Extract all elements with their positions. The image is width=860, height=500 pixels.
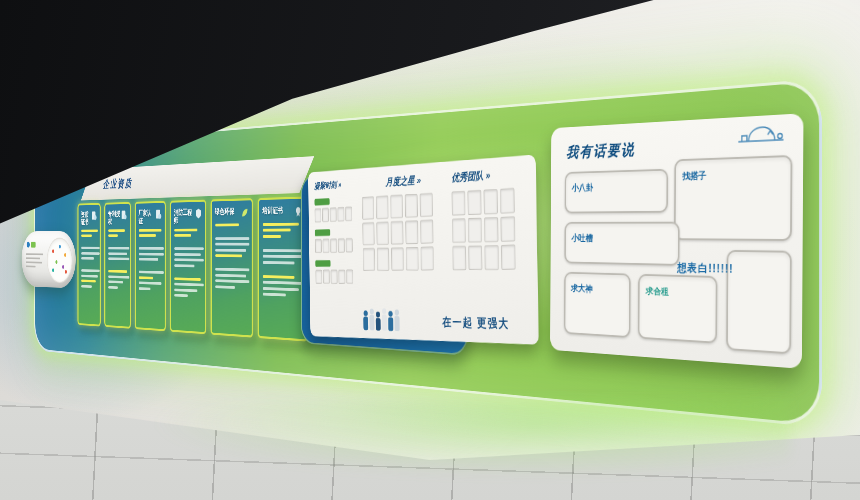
brand-cylinder [22,231,76,288]
brand-logo-icon [26,241,37,249]
floor-glow-reflection [150,400,790,478]
photo-frame [484,217,498,242]
panel-title: 消防工程师 [174,208,195,224]
wall-header-title: 企业资质 [103,176,133,192]
photo-frame [391,247,404,270]
qualification-panel: 厂家认证 [135,201,166,331]
photo-frame [377,248,389,271]
photo-frame [345,207,352,222]
photo-frame [337,207,344,221]
honor-column-moments: 凝聚时刻 » [314,176,360,284]
message-cell-extra [726,250,792,354]
cell-label: 小吐槽 [571,233,592,243]
photo-frame [315,239,322,253]
honor-board: 凝聚时刻 » 月度之星 » 优秀团队 » [308,155,539,345]
certificate-icon [91,210,97,221]
photo-frame [484,189,498,214]
cell-label: 求合租 [646,286,669,297]
team-people-illustration [361,304,403,337]
photo-frame [420,193,433,217]
photo-frame [323,239,330,253]
photo-frame [452,218,466,243]
brand-logo-block [26,241,45,270]
shield-icon [195,208,202,220]
photo-frame [452,191,466,216]
photo-frame [346,269,353,283]
message-cell-gossip: 小八卦 [565,169,668,214]
qualification-panel: 绿色环保 [211,198,253,337]
cell-label: 求大神 [571,283,592,293]
exhibition-hall-render: 企业资质 资 [0,0,860,500]
panel-title: 资质证书 [81,211,91,226]
photo-frame [405,220,418,244]
month-tag [315,229,330,236]
qualification-panel: 消防工程师 [170,200,206,335]
panel-title: 绿色环保 [215,207,234,216]
photo-frame [376,195,388,219]
leaf-icon [241,207,249,219]
photo-frame [330,207,337,221]
qualification-panel: 培训证书 [258,196,308,341]
photo-frame [315,270,322,284]
photo-frame [363,248,375,271]
panel-title: 厂家认证 [139,209,156,225]
photo-frame [362,222,374,245]
photo-frame [338,270,345,284]
honor-col1-header: 凝聚时刻 » [314,178,358,192]
photo-frame [362,196,374,219]
photo-frame [501,216,516,241]
photo-frame [323,270,330,284]
confess-callout: 想表白!!!!!! [677,260,733,277]
network-diagram [47,238,72,284]
honor-col2-header: 月度之星 » [362,171,447,191]
photo-frame [322,208,329,222]
honor-column-best-team: 优秀团队 » [451,163,533,270]
photo-frame [467,190,481,215]
photo-frame [468,245,482,270]
photo-frame [315,208,322,222]
message-cell-roommate: 求合租 [638,274,718,344]
honor-column-star-of-month: 月度之星 » [362,170,448,271]
message-board: 我有话要说 找搭子 小八卦 小吐槽 求大神 求合租 想表白!!!!!! [550,113,803,369]
photo-frame [346,238,353,252]
month-tag [314,198,329,205]
photo-frame [468,218,482,243]
qualification-panel: 专利授权 [104,202,131,329]
photo-frame [391,221,404,245]
photo-frame [500,188,515,214]
photo-frame [331,270,338,284]
message-board-title: 我有话要说 [566,139,635,162]
photo-frame [338,238,345,252]
honor-slogan: 在一起 更强大 [442,315,509,332]
photo-frame [501,245,516,270]
certificate-icon [155,209,162,220]
photo-frame [452,246,466,270]
photo-frame [390,195,403,219]
panel-title: 培训证书 [262,206,283,215]
doodle-icon [730,120,791,148]
month-tag [315,260,330,267]
photo-frame [421,247,434,271]
message-cell-partner: 找搭子 [674,155,792,241]
photo-frame [406,247,419,271]
message-cell-complaint: 小吐槽 [564,222,679,266]
message-cell-master: 求大神 [564,272,631,338]
panel-title: 专利授权 [108,210,121,225]
qualification-panel: 资质证书 [77,203,100,327]
photo-frame [484,245,498,270]
certificate-icon [121,210,127,221]
honor-col3-header: 优秀团队 » [451,165,531,185]
photo-frame [376,222,388,245]
photo-frame [330,239,337,253]
cell-label: 小八卦 [572,183,593,193]
photo-frame [420,220,433,244]
cell-label: 找搭子 [682,170,706,181]
photo-frame [405,194,418,218]
